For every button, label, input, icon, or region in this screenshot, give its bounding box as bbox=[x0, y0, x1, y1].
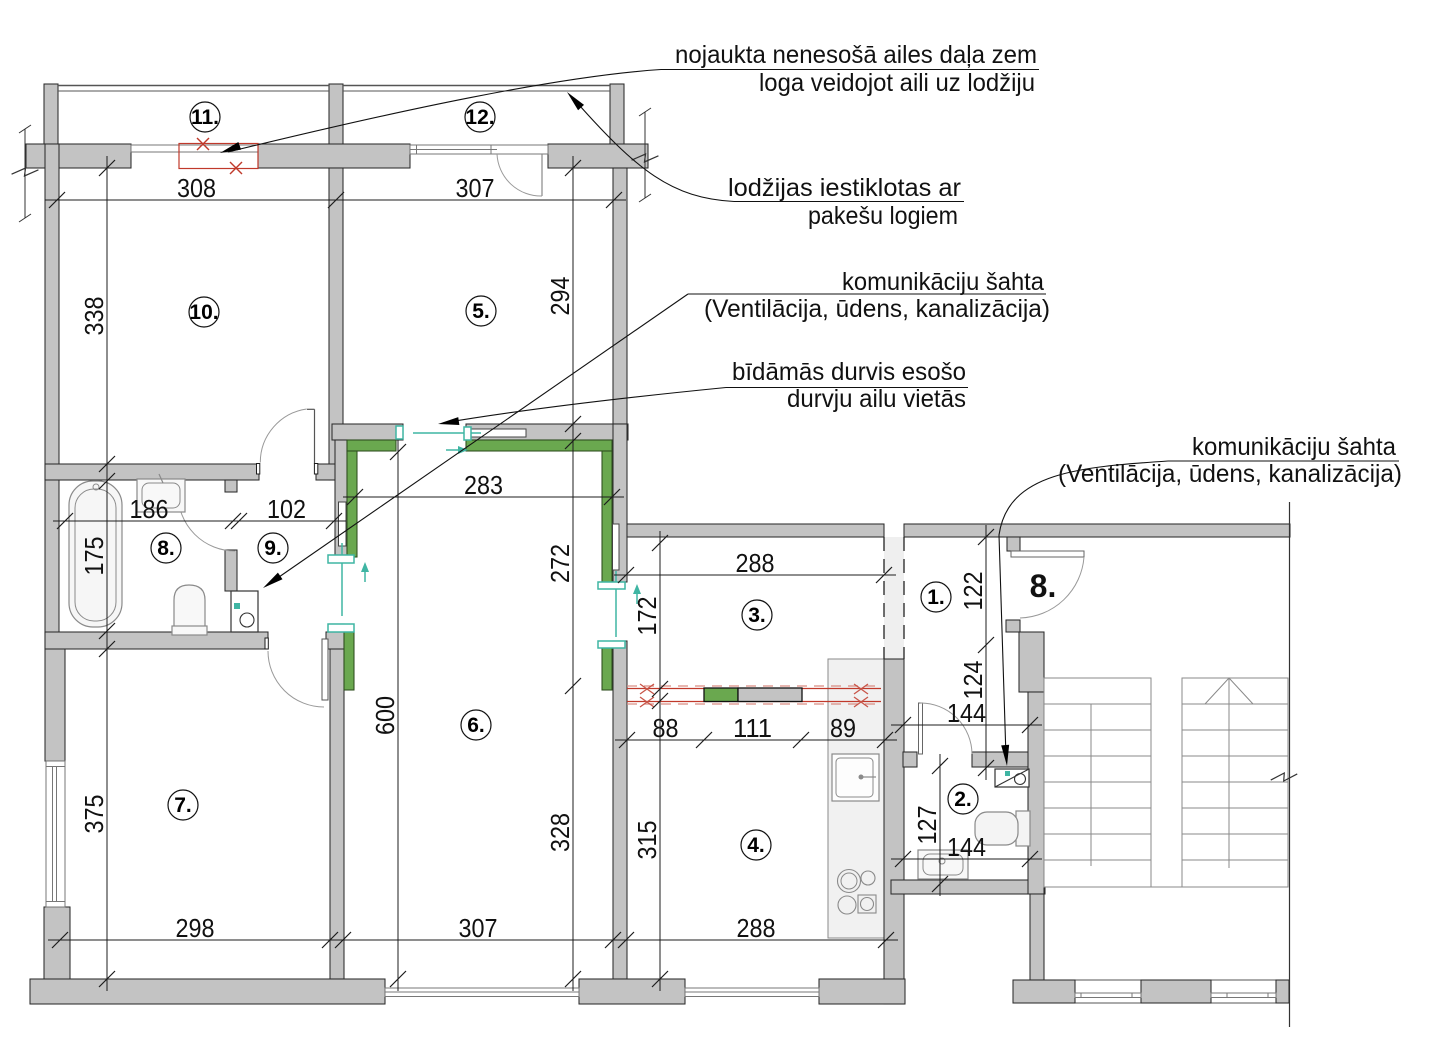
svg-text:283: 283 bbox=[464, 470, 503, 500]
svg-text:bīdāmās durvis esošo: bīdāmās durvis esošo bbox=[732, 358, 966, 386]
svg-text:307: 307 bbox=[456, 173, 495, 203]
svg-text:pakešu logiem: pakešu logiem bbox=[808, 202, 958, 230]
svg-text:8.: 8. bbox=[157, 537, 175, 560]
svg-text:nojaukta nenesošā ailes daļa z: nojaukta nenesošā ailes daļa zem bbox=[675, 41, 1037, 69]
svg-text:1.: 1. bbox=[927, 586, 945, 609]
svg-text:89: 89 bbox=[830, 713, 856, 743]
svg-text:komunikāciju šahta: komunikāciju šahta bbox=[842, 268, 1044, 296]
svg-text:lodžijas iestiklotas ar: lodžijas iestiklotas ar bbox=[728, 174, 961, 202]
svg-text:88: 88 bbox=[653, 713, 679, 743]
svg-text:5.: 5. bbox=[472, 300, 490, 323]
svg-text:loga veidojot aili uz lodžiju: loga veidojot aili uz lodžiju bbox=[759, 69, 1035, 97]
svg-text:307: 307 bbox=[459, 913, 498, 943]
svg-text:175: 175 bbox=[79, 537, 109, 576]
svg-text:127: 127 bbox=[912, 806, 942, 845]
svg-text:7.: 7. bbox=[174, 794, 192, 817]
svg-text:111: 111 bbox=[733, 713, 772, 743]
svg-text:315: 315 bbox=[632, 821, 662, 860]
svg-text:124: 124 bbox=[958, 661, 988, 700]
svg-text:6.: 6. bbox=[467, 714, 485, 737]
svg-text:4.: 4. bbox=[747, 834, 765, 857]
svg-text:9.: 9. bbox=[264, 537, 282, 560]
svg-text:122: 122 bbox=[958, 572, 988, 611]
svg-text:3.: 3. bbox=[748, 604, 766, 627]
svg-text:durvju ailu vietās: durvju ailu vietās bbox=[787, 385, 966, 413]
svg-text:272: 272 bbox=[545, 544, 575, 583]
svg-text:288: 288 bbox=[736, 548, 775, 578]
svg-text:328: 328 bbox=[545, 813, 575, 852]
svg-text:172: 172 bbox=[632, 597, 662, 636]
svg-text:11.: 11. bbox=[191, 106, 219, 129]
svg-text:288: 288 bbox=[737, 913, 776, 943]
svg-text:(Ventilācija, ūdens, kanalizāc: (Ventilācija, ūdens, kanalizācija) bbox=[1058, 460, 1402, 488]
svg-text:144: 144 bbox=[947, 832, 986, 862]
svg-text:(Ventilācija, ūdens, kanalizāc: (Ventilācija, ūdens, kanalizācija) bbox=[704, 295, 1050, 323]
svg-text:2.: 2. bbox=[954, 788, 972, 811]
svg-text:102: 102 bbox=[267, 494, 306, 524]
svg-text:10.: 10. bbox=[189, 301, 218, 324]
svg-text:298: 298 bbox=[176, 913, 215, 943]
svg-text:komunikāciju šahta: komunikāciju šahta bbox=[1192, 433, 1396, 461]
svg-text:375: 375 bbox=[79, 795, 109, 834]
svg-text:294: 294 bbox=[545, 277, 575, 316]
svg-text:8.: 8. bbox=[1030, 568, 1057, 604]
svg-text:308: 308 bbox=[177, 173, 216, 203]
svg-text:12.: 12. bbox=[465, 106, 494, 129]
svg-text:144: 144 bbox=[947, 698, 986, 728]
svg-text:338: 338 bbox=[79, 297, 109, 336]
svg-text:600: 600 bbox=[370, 696, 400, 735]
svg-text:186: 186 bbox=[130, 494, 169, 524]
